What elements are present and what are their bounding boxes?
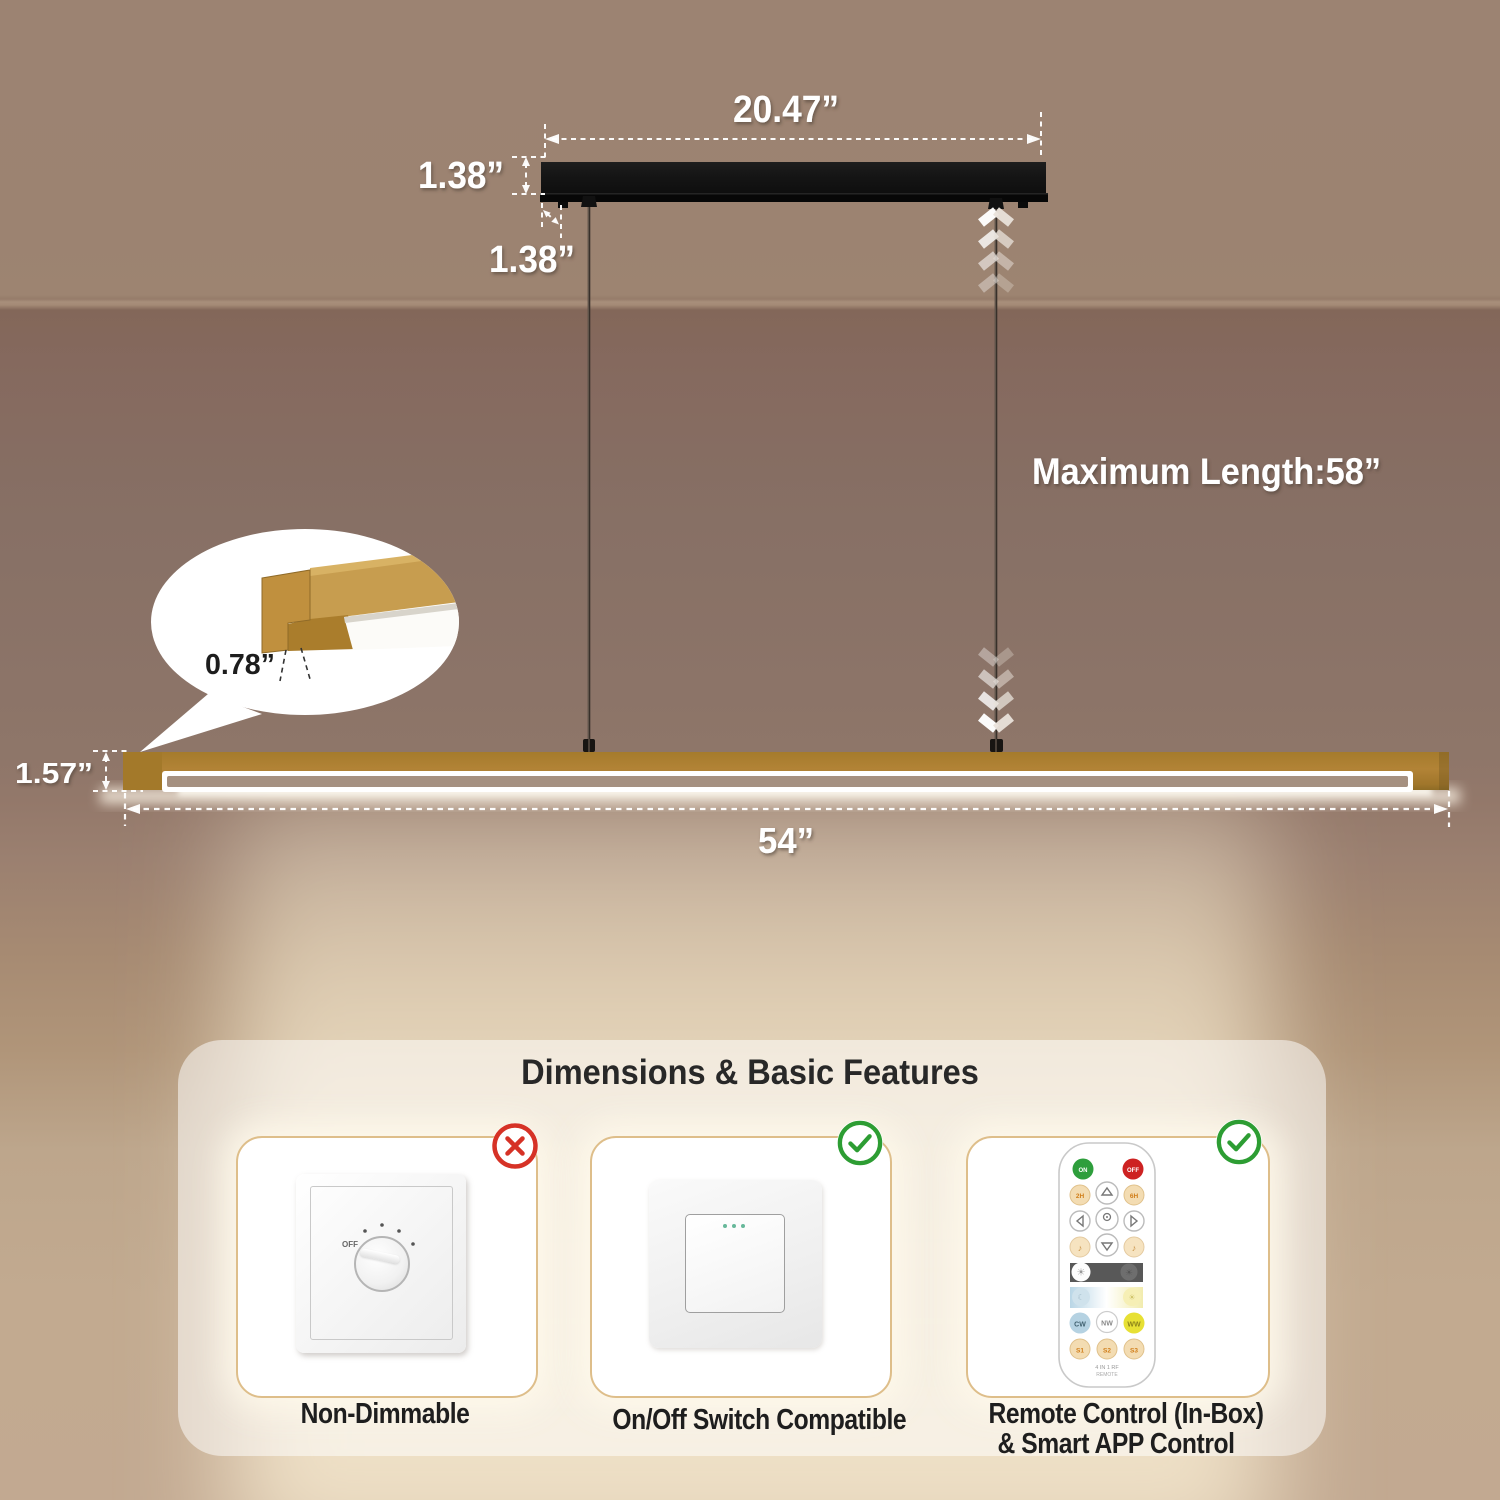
svg-text:S2: S2 — [1103, 1348, 1111, 1355]
svg-text:1.38”: 1.38” — [489, 239, 575, 281]
svg-text:OFF: OFF — [342, 1240, 358, 1249]
svg-text:☀: ☀ — [1077, 1268, 1086, 1279]
svg-text:CW: CW — [1074, 1322, 1086, 1329]
svg-text:☾: ☾ — [1077, 1293, 1084, 1302]
svg-text:♪: ♪ — [1132, 1243, 1137, 1253]
svg-text:Maximum Length:58”: Maximum Length:58” — [1032, 451, 1381, 492]
svg-text:WW: WW — [1127, 1322, 1141, 1329]
svg-text:6H: 6H — [1130, 1193, 1139, 1200]
svg-text:ON: ON — [1079, 1168, 1088, 1174]
svg-text:S3: S3 — [1130, 1348, 1138, 1355]
svg-text:4 IN 1 RF: 4 IN 1 RF — [1095, 1365, 1119, 1371]
svg-text:REMOTE: REMOTE — [1096, 1372, 1118, 1378]
svg-text:NW: NW — [1101, 1321, 1113, 1328]
svg-text:OFF: OFF — [1127, 1168, 1139, 1174]
svg-text:1.38”: 1.38” — [418, 155, 504, 197]
svg-text:20.47”: 20.47” — [733, 89, 839, 131]
svg-text:0.78”: 0.78” — [205, 649, 275, 681]
svg-text:S1: S1 — [1076, 1348, 1084, 1355]
svg-text:2H: 2H — [1076, 1193, 1085, 1200]
svg-text:1.57”: 1.57” — [15, 758, 93, 790]
svg-text:54”: 54” — [758, 820, 814, 861]
svg-text:☀: ☀ — [1125, 1268, 1133, 1278]
svg-text:♪: ♪ — [1078, 1243, 1083, 1253]
svg-text:☀: ☀ — [1128, 1293, 1135, 1302]
